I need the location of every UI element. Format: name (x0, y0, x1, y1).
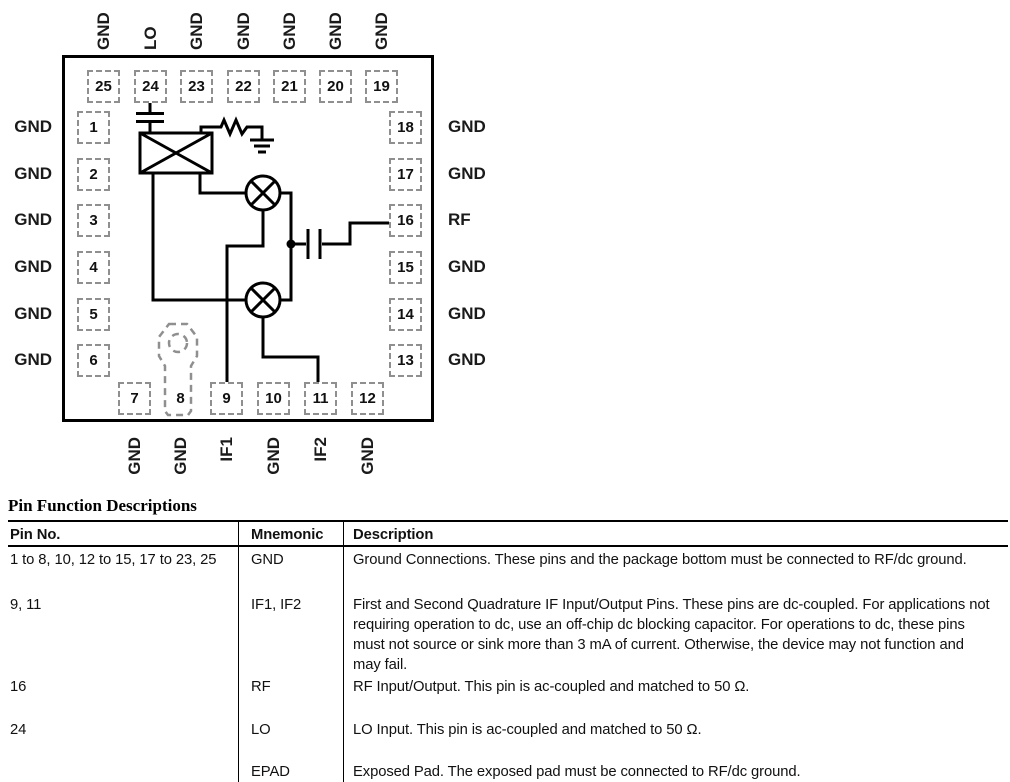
pin-box-13: 13 (389, 344, 422, 377)
table-row-description: LO Input. This pin is ac-coupled and mat… (343, 717, 1008, 759)
pin-box-16: 16 (389, 204, 422, 237)
pin-box-19: 19 (365, 70, 398, 103)
pin-label-13: GND (448, 350, 500, 370)
pin-label-4: GND (0, 257, 52, 277)
pin-label-17: GND (448, 164, 500, 184)
table-row-pin: 9, 11 (8, 592, 238, 674)
col-header-description: Description (343, 522, 1008, 547)
table-row-description: RF Input/Output. This pin is ac-coupled … (343, 674, 1008, 717)
pin-box-1: 1 (77, 111, 110, 144)
col-header-mnemonic: Mnemonic (238, 522, 343, 547)
pin-label-25: GND (94, 0, 114, 50)
pin-box-12: 12 (351, 382, 384, 415)
pin-label-20: GND (326, 0, 346, 50)
pin-label-1: GND (0, 117, 52, 137)
pin-box-2: 2 (77, 158, 110, 191)
pin-box-24: 24 (134, 70, 167, 103)
table-row-description: Ground Connections. These pins and the p… (343, 547, 1008, 592)
pin-label-11: IF2 (311, 437, 331, 492)
pin-box-9: 9 (210, 382, 243, 415)
pin-label-8: GND (171, 437, 191, 492)
table-row-pin: 16 (8, 674, 238, 717)
pin-box-21: 21 (273, 70, 306, 103)
pin-box-18: 18 (389, 111, 422, 144)
table-row-pin: 1 to 8, 10, 12 to 15, 17 to 23, 25 (8, 547, 238, 592)
col-header-pin-no: Pin No. (8, 522, 238, 547)
pin-box-17: 17 (389, 158, 422, 191)
pin-label-12: GND (358, 437, 378, 492)
pin-box-25: 25 (87, 70, 120, 103)
pin-box-15: 15 (389, 251, 422, 284)
pin-label-14: GND (448, 304, 500, 324)
pin-label-23: GND (187, 0, 207, 50)
pin-box-6: 6 (77, 344, 110, 377)
pin-label-16: RF (448, 210, 500, 230)
pin-box-8: 8 (164, 382, 197, 415)
pin-label-6: GND (0, 350, 52, 370)
table-row-description: First and Second Quadrature IF Input/Out… (343, 592, 1008, 674)
pin-label-7: GND (125, 437, 145, 492)
pin-box-4: 4 (77, 251, 110, 284)
pin-label-2: GND (0, 164, 52, 184)
pin-label-22: GND (234, 0, 254, 50)
pin-label-24: LO (141, 0, 161, 50)
pin-label-5: GND (0, 304, 52, 324)
table-row-mnemonic: IF1, IF2 (238, 592, 343, 674)
table-row-mnemonic: GND (238, 547, 343, 592)
pin-box-5: 5 (77, 298, 110, 331)
pin-box-3: 3 (77, 204, 110, 237)
pin-box-20: 20 (319, 70, 352, 103)
pin-label-10: GND (264, 437, 284, 492)
pinout-figure: 25GND24LO23GND22GND21GND20GND19GND7GND8G… (0, 0, 1010, 779)
pin-box-22: 22 (227, 70, 260, 103)
pin-function-table: Pin No. Mnemonic Description 1 to 8, 10,… (8, 520, 1008, 779)
table-title: Pin Function Descriptions (8, 496, 197, 516)
table-row-pin: 24 (8, 717, 238, 759)
pin-box-23: 23 (180, 70, 213, 103)
pin-box-10: 10 (257, 382, 290, 415)
pin-label-9: IF1 (217, 437, 237, 492)
pin-box-7: 7 (118, 382, 151, 415)
package-outline (62, 55, 434, 422)
pin-label-19: GND (372, 0, 392, 50)
pin-box-14: 14 (389, 298, 422, 331)
pin-label-18: GND (448, 117, 500, 137)
pin-box-11: 11 (304, 382, 337, 415)
table-row-mnemonic: RF (238, 674, 343, 717)
table-row-mnemonic: LO (238, 717, 343, 759)
pin-label-21: GND (280, 0, 300, 50)
pin-label-15: GND (448, 257, 500, 277)
pin-label-3: GND (0, 210, 52, 230)
